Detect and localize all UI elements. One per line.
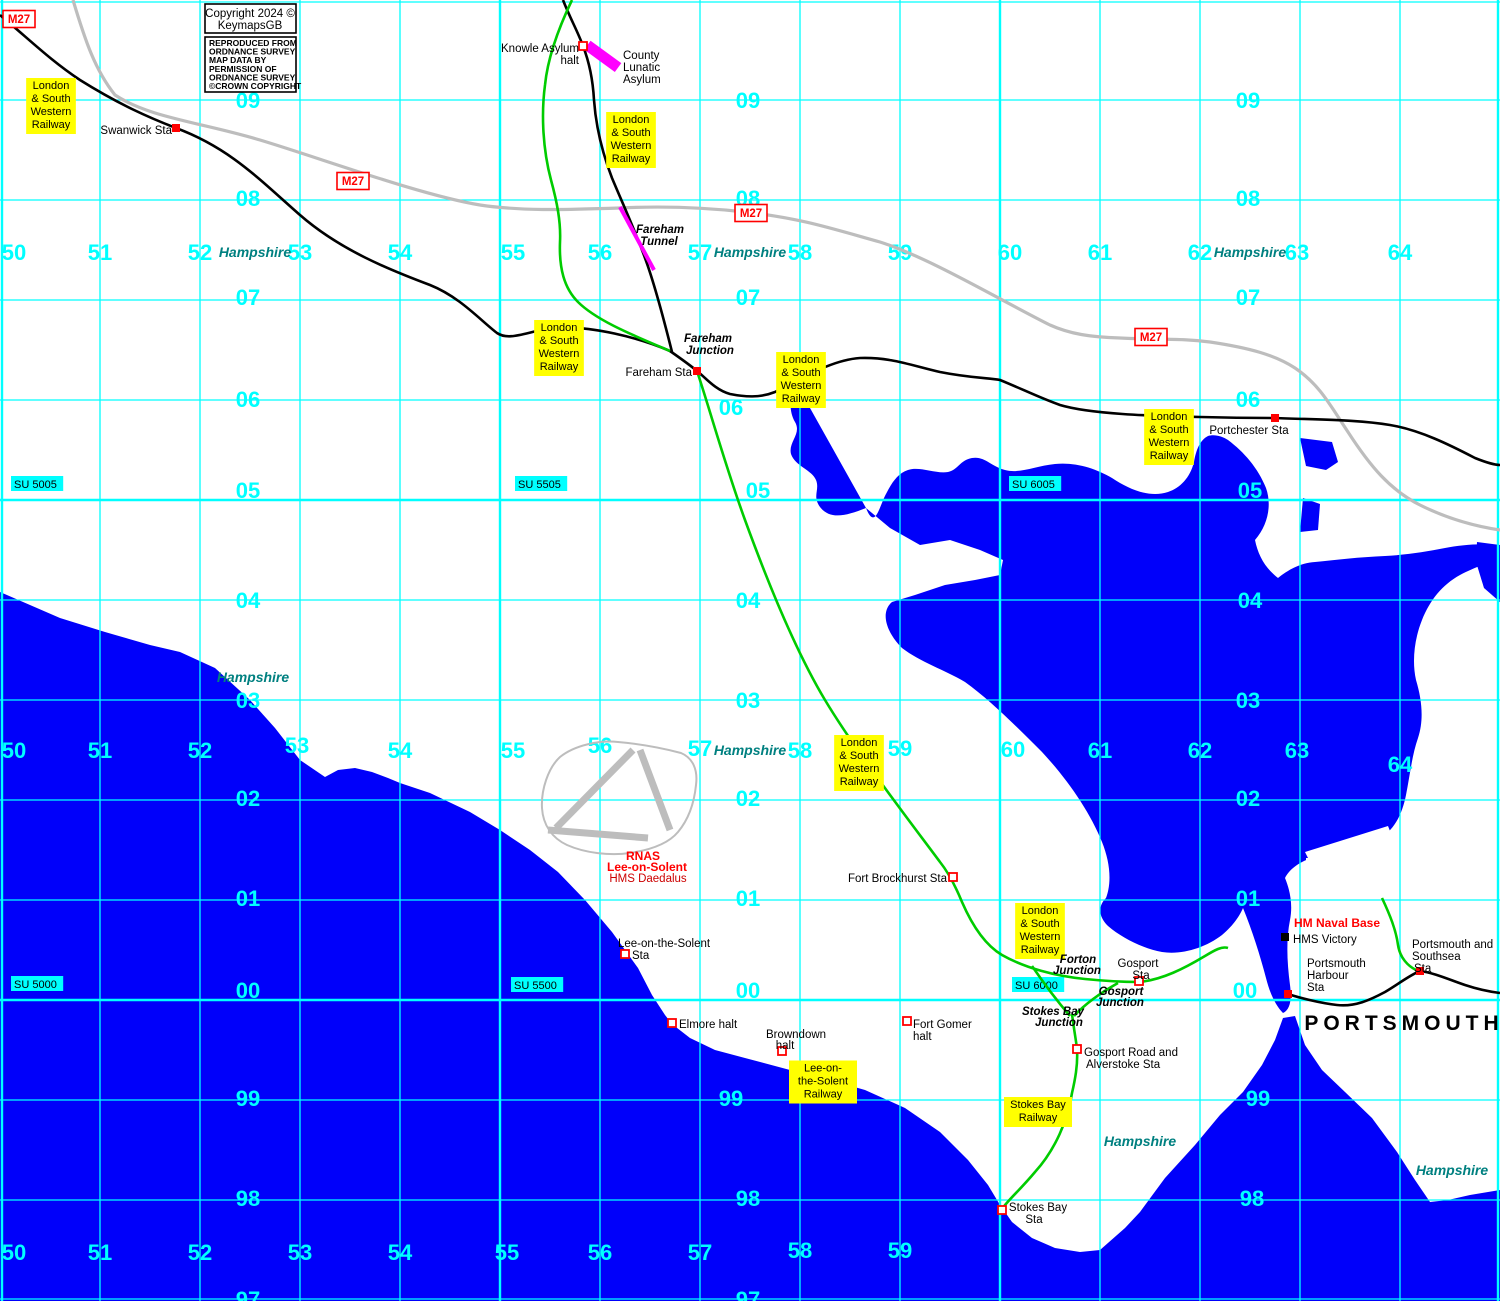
grid-square-tag: SU 5000	[14, 979, 57, 991]
island-horsea	[1427, 594, 1471, 658]
grid-row-label: 03	[736, 688, 760, 713]
grid-column-label: 63	[1285, 738, 1309, 763]
grid-row-label: 03	[1236, 688, 1260, 713]
map-canvas: 5051525354555657585960616263645051525354…	[0, 0, 1500, 1301]
lswr-box-text: Railway	[540, 361, 579, 373]
lswr-box-text: Railway	[840, 776, 879, 788]
lswr-box-text: Western	[1149, 437, 1190, 449]
station-label: halt	[560, 55, 579, 67]
station-marker-portsmouth-harbour-sta	[1284, 990, 1292, 998]
grid-column-label: 55	[501, 240, 525, 265]
grid-column-label: 61	[1088, 240, 1112, 265]
lee-on-the-solent-railway-box-text: the-Solent	[798, 1076, 848, 1088]
rnas-lee-on-solent-label: HMS Daedalus	[609, 873, 687, 885]
m27-badge-text: M27	[1140, 332, 1162, 344]
copyright-text: KeymapsGB	[218, 20, 283, 32]
grid-column-label: 58	[788, 1238, 812, 1263]
grid-column-label: 58	[788, 738, 812, 763]
station-label: halt	[776, 1040, 795, 1052]
grid-column-label: 63	[1285, 240, 1309, 265]
grid-column-label: 57	[688, 1240, 712, 1265]
grid-column-label: 50	[2, 240, 26, 265]
sea-layer	[0, 383, 1500, 1301]
station-label: Portchester Sta	[1209, 425, 1289, 437]
station-label: Fareham Sta	[626, 367, 693, 379]
grid-row-label: 97	[736, 1287, 760, 1301]
grid-row-label: 04	[236, 588, 261, 613]
grid-row-label: 08	[236, 186, 260, 211]
lee-on-the-solent-railway-box-text: Railway	[804, 1089, 843, 1101]
lswr-box-text: Western	[839, 763, 880, 775]
hampshire-county-label: Hampshire	[714, 244, 787, 260]
m27-badge-text: M27	[740, 208, 762, 220]
hampshire-county-label: Hampshire	[219, 244, 292, 260]
airfield-runway-1	[556, 750, 633, 828]
lswr-box-text: Railway	[32, 119, 71, 131]
lswr-box-text: London	[541, 322, 578, 334]
os-notice-text: ©CROWN COPYRIGHT	[209, 81, 302, 91]
grid-row-label: 00	[736, 978, 760, 1003]
railway-map: 5051525354555657585960616263645051525354…	[0, 0, 1500, 1301]
station-marker-fareham-sta	[693, 367, 701, 375]
hms-victory-marker	[1281, 933, 1289, 941]
grid-column-label: 64	[1388, 240, 1413, 265]
lswr-box-text: & South	[1149, 424, 1188, 436]
station-marker-swanwick-sta	[172, 124, 180, 132]
station-label: Harbour	[1307, 970, 1349, 982]
station-label: Portsmouth	[1307, 958, 1366, 970]
county-lunatic-asylum-label: Asylum	[623, 74, 661, 86]
grid-row-label: 03	[236, 688, 260, 713]
grid-row-label: 01	[736, 886, 760, 911]
stokes-bay-junction-label: Junction	[1035, 1017, 1083, 1029]
railway-dockyard-branch	[1382, 898, 1416, 970]
grid-row-label: 98	[236, 1186, 260, 1211]
station-label: Gosport Road and	[1084, 1047, 1178, 1059]
station-marker-portchester-sta	[1271, 414, 1279, 422]
lswr-box-text: London	[1151, 411, 1188, 423]
grid-column-label: 58	[788, 240, 812, 265]
grid-row-label: 06	[236, 387, 260, 412]
station-label: Fort Gomer	[913, 1019, 972, 1031]
grid-column-label: 51	[88, 1240, 112, 1265]
station-label: Sta	[1132, 970, 1150, 982]
station-label: Sta	[632, 950, 650, 962]
grid-column-label: 54	[388, 240, 413, 265]
station-label: Knowle Asylum	[501, 43, 579, 55]
grid-row-label: 09	[1236, 88, 1260, 113]
grid-row-label: 08	[1236, 186, 1260, 211]
grid-square-tag: SU 5500	[514, 980, 557, 992]
grid-column-label: 55	[501, 738, 525, 763]
grid-row-label: 99	[236, 1086, 260, 1111]
lswr-box-text: London	[841, 737, 878, 749]
lswr-box-text: Western	[539, 348, 580, 360]
grid-square-tag: SU 5505	[518, 479, 561, 491]
lswr-box-text: London	[783, 354, 820, 366]
lswr-box-text: Railway	[1150, 450, 1189, 462]
hampshire-county-label: Hampshire	[1214, 244, 1287, 260]
dockyard-basin-east	[1352, 860, 1386, 900]
grid-column-label: 51	[88, 738, 112, 763]
grid-row-label: 99	[1246, 1086, 1270, 1111]
station-marker-stokes-bay-sta	[998, 1206, 1006, 1214]
grid-column-label: 60	[1001, 737, 1025, 762]
station-label: halt	[913, 1031, 932, 1043]
grid-row-label: 07	[736, 285, 760, 310]
lswr-box-text: Railway	[612, 153, 651, 165]
county-lunatic-asylum-label: Lunatic	[623, 62, 660, 74]
airfield-runway-2	[548, 830, 648, 838]
fareham-tunnel-label: Fareham	[636, 224, 684, 236]
lswr-box-text: London	[33, 80, 70, 92]
fareham-tunnel-label: Tunnel	[640, 236, 678, 248]
fareham-junction-label: Fareham	[684, 333, 732, 345]
airfield-runway-3	[640, 750, 670, 830]
hampshire-county-label: Hampshire	[714, 742, 787, 758]
lswr-box-text: Western	[611, 140, 652, 152]
stokes-bay-railway-box-text: Stokes Bay	[1010, 1099, 1066, 1111]
hampshire-county-label: Hampshire	[1104, 1133, 1177, 1149]
lswr-box-text: Western	[31, 106, 72, 118]
grid-column-label: 54	[388, 1240, 413, 1265]
station-label: Sta	[1307, 982, 1325, 994]
grid-row-label: 01	[236, 886, 260, 911]
sea-right-edge-inlet	[1476, 542, 1500, 602]
grid-row-label: 02	[1236, 786, 1260, 811]
station-label: Southsea	[1412, 951, 1461, 963]
grid-row-label: 07	[1236, 285, 1260, 310]
grid-column-label: 62	[1188, 240, 1212, 265]
grid-column-label: 53	[285, 733, 309, 758]
station-marker-fort-gomer-halt	[903, 1017, 911, 1025]
grid-column-label: 51	[88, 240, 112, 265]
station-marker-fort-brockhurst-sta	[949, 873, 957, 881]
hms-victory-label: HMS Victory	[1293, 934, 1357, 946]
grid-column-label: 55	[495, 1240, 519, 1265]
grid-row-label: 02	[236, 786, 260, 811]
copyright-text: Copyright 2024 ©	[205, 8, 295, 20]
grid-column-label: 59	[888, 1238, 912, 1263]
grid-column-label: 56	[588, 733, 612, 758]
grid-row-label: 99	[719, 1086, 743, 1111]
m27-badge-text: M27	[342, 176, 364, 188]
grid-square-tag: SU 5005	[14, 479, 57, 491]
lswr-box-text: & South	[611, 127, 650, 139]
station-label: Sta	[1025, 1214, 1043, 1226]
lswr-box-text: Railway	[782, 393, 821, 405]
station-label: Gosport	[1118, 958, 1160, 970]
grid-row-label: 01	[1236, 886, 1260, 911]
lswr-box-text: & South	[839, 750, 878, 762]
sea-portchester-inlet	[1300, 438, 1338, 470]
grid-row-label: 02	[736, 786, 760, 811]
grid-column-label: 61	[1088, 738, 1112, 763]
lswr-box-text: London	[1022, 905, 1059, 917]
hampshire-county-label: Hampshire	[217, 669, 290, 685]
grid-row-label: 09	[736, 88, 760, 113]
grid-row-label: 05	[236, 478, 260, 503]
grid-column-label: 62	[1188, 738, 1212, 763]
hampshire-county-label: Hampshire	[1416, 1162, 1489, 1178]
gosport-junction-label: Junction	[1096, 997, 1144, 1009]
rnas-lee-on-solent-label: Lee-on-Solent	[607, 860, 687, 874]
grid-column-label: 64	[1388, 752, 1413, 777]
dockyard-basin-west	[1306, 858, 1346, 904]
sea-portsmouth-harbour	[791, 383, 1500, 1013]
grid-column-label: 53	[288, 1240, 312, 1265]
grid-row-label: 98	[1240, 1186, 1264, 1211]
lswr-box-text: & South	[781, 367, 820, 379]
grid-square-tag: SU 6005	[1012, 479, 1055, 491]
grid-column-label: 53	[288, 240, 312, 265]
grid-column-label: 50	[2, 1240, 26, 1265]
station-label: Stokes Bay	[1009, 1202, 1067, 1214]
grid-column-label: 52	[188, 738, 212, 763]
grid-column-label: 57	[688, 736, 712, 761]
county-lunatic-asylum-label: County	[623, 50, 660, 62]
lswr-box-text: Railway	[1021, 944, 1060, 956]
grid-row-label: 05	[746, 478, 770, 503]
station-marker-knowle-asylum-halt	[579, 42, 587, 50]
station-marker-lee-on-the-solent-sta	[621, 950, 629, 958]
fareham-junction-label: Junction	[686, 345, 734, 357]
sea-portchester-inlet-2	[1300, 498, 1320, 532]
station-label: Lee-on-the-Solent	[618, 938, 711, 950]
station-label: Sta	[1414, 963, 1432, 975]
grid-square-tag: SU 6000	[1015, 980, 1058, 992]
grid-column-label: 56	[588, 240, 612, 265]
station-marker-gosport-road-and-alverstoke-sta	[1073, 1045, 1081, 1053]
grid-column-label: 52	[188, 240, 212, 265]
grid-column-label: 59	[888, 736, 912, 761]
grid-row-label: 06	[719, 395, 743, 420]
station-label: Fort Brockhurst Sta	[848, 873, 948, 885]
portsmouth-city-label: PORTSMOUTH	[1304, 1012, 1500, 1035]
lswr-box-text: & South	[1020, 918, 1059, 930]
lswr-box-text: Western	[781, 380, 822, 392]
forton-junction-label: Junction	[1053, 965, 1101, 977]
grid-row-label: 04	[736, 588, 761, 613]
station-label: Portsmouth and	[1412, 939, 1493, 951]
grid-row-label: 04	[1238, 588, 1263, 613]
hm-naval-base-label: HM Naval Base	[1294, 916, 1380, 930]
grid-row-label: 97	[236, 1287, 260, 1301]
station-label: Swanwick Sta	[100, 125, 172, 137]
grid-column-label: 54	[388, 738, 413, 763]
grid-column-label: 52	[188, 1240, 212, 1265]
stokes-bay-railway-box-text: Railway	[1019, 1112, 1058, 1124]
grid-row-label: 00	[236, 978, 260, 1003]
grid-row-label: 07	[236, 285, 260, 310]
grid-row-label: 06	[1236, 387, 1260, 412]
m27-badge-text: M27	[8, 14, 30, 26]
grid-column-label: 56	[588, 1240, 612, 1265]
lswr-box-text: & South	[31, 93, 70, 105]
grid-row-label: 00	[1233, 978, 1257, 1003]
grid-column-label: 60	[998, 240, 1022, 265]
lswr-box-text: London	[613, 114, 650, 126]
station-marker-elmore-halt	[668, 1019, 676, 1027]
station-label: Alverstoke Sta	[1086, 1059, 1161, 1071]
lswr-box-text: Western	[1020, 931, 1061, 943]
lswr-box-text: & South	[539, 335, 578, 347]
station-label: Elmore halt	[679, 1019, 738, 1031]
grid-column-label: 50	[2, 738, 26, 763]
grid-column-label: 57	[688, 240, 712, 265]
grid-row-label: 98	[736, 1186, 760, 1211]
lee-on-the-solent-railway-box-text: Lee-on-	[804, 1063, 842, 1075]
grid-row-label: 05	[1238, 478, 1262, 503]
